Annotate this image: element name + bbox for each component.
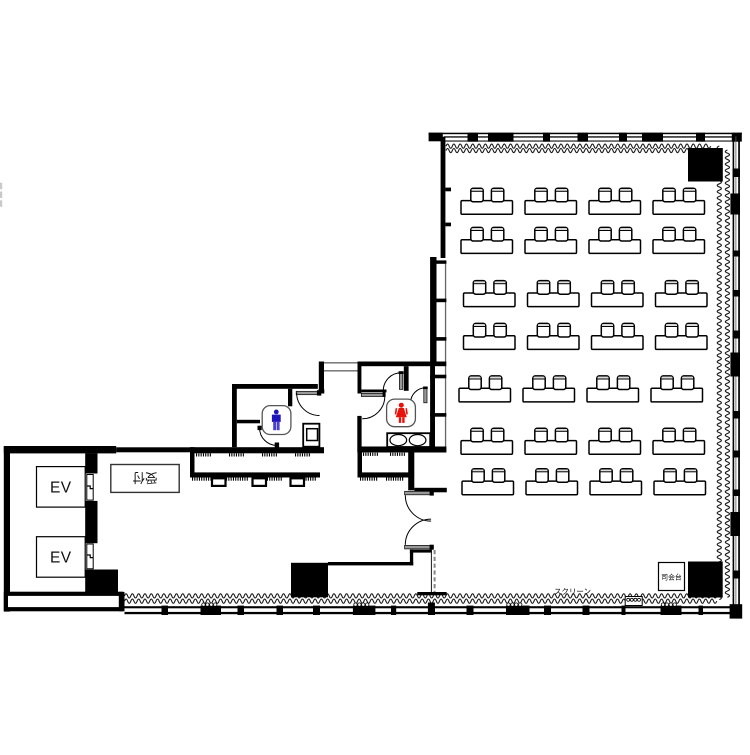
svg-text:スクリーン: スクリーン: [554, 587, 591, 596]
svg-text:受付: 受付: [132, 471, 157, 485]
svg-text:EV: EV: [50, 480, 72, 497]
svg-text:EV: EV: [50, 550, 72, 567]
svg-text:司会台: 司会台: [661, 573, 682, 582]
